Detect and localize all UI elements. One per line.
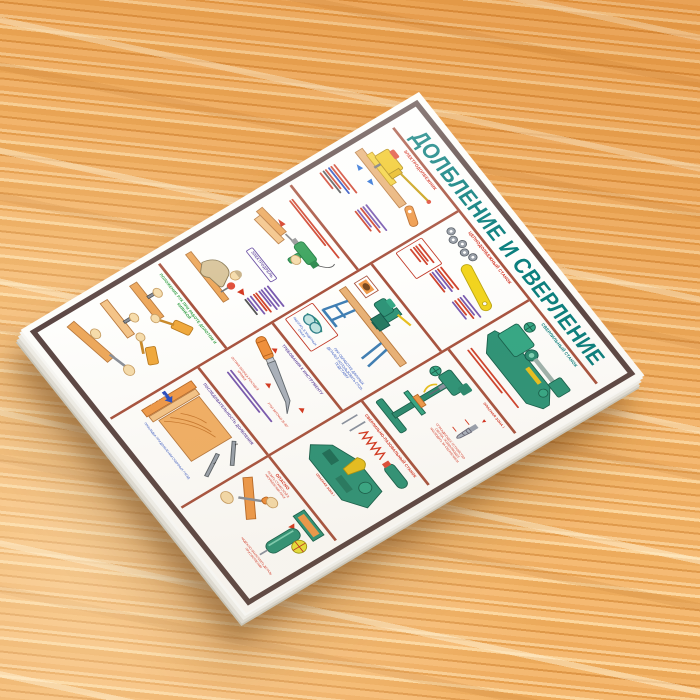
poster-content: ЭЛЕКТРОДОЛБЕЖНИК <box>43 126 598 595</box>
danger-arrow-icon: ▼ <box>479 418 488 426</box>
poster: ДОЛБЛЕНИЕ И СВЕРЛЕНИЕ ЭЛЕКТРОДОЛБЕЖНИК <box>21 92 645 613</box>
poster-frame: ДОЛБЛЕНИЕ И СВЕРЛЕНИЕ ЭЛЕКТРОДОЛБЕЖНИК <box>30 100 636 606</box>
wooden-table-background: ДОЛБЛЕНИЕ И СВЕРЛЕНИЕ ЭЛЕКТРОДОЛБЕЖНИК <box>0 0 700 700</box>
